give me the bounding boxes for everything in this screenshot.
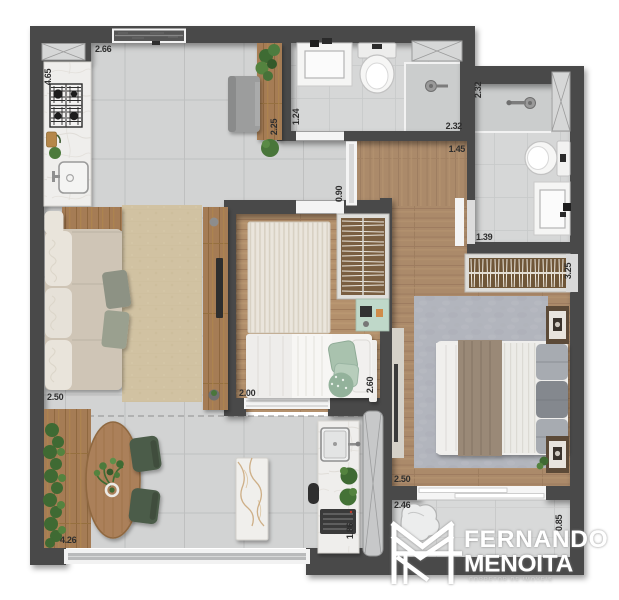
svg-text:2.50: 2.50 [394, 474, 411, 484]
svg-text:FERNANDO: FERNANDO [464, 526, 608, 553]
svg-text:0.90: 0.90 [334, 186, 344, 203]
svg-text:1.86: 1.86 [345, 523, 355, 540]
svg-text:3.25: 3.25 [563, 263, 573, 280]
svg-text:CORRETOR DE IMOVEIS: CORRETOR DE IMOVEIS [469, 577, 553, 583]
svg-text:2.32: 2.32 [473, 82, 483, 99]
svg-text:2.00: 2.00 [239, 388, 256, 398]
svg-text:1.45: 1.45 [449, 144, 466, 154]
svg-text:2.46: 2.46 [394, 500, 411, 510]
svg-text:1.24: 1.24 [291, 109, 301, 126]
svg-text:2.60: 2.60 [365, 377, 375, 394]
svg-text:1.39: 1.39 [476, 232, 493, 242]
svg-text:MENOITA: MENOITA [464, 551, 574, 578]
svg-text:2.66: 2.66 [95, 44, 112, 54]
svg-text:4.65: 4.65 [43, 69, 53, 86]
svg-text:4.26: 4.26 [60, 535, 77, 545]
svg-text:2.25: 2.25 [269, 119, 279, 136]
svg-text:2.50: 2.50 [47, 392, 64, 402]
svg-text:2.32: 2.32 [446, 121, 463, 131]
